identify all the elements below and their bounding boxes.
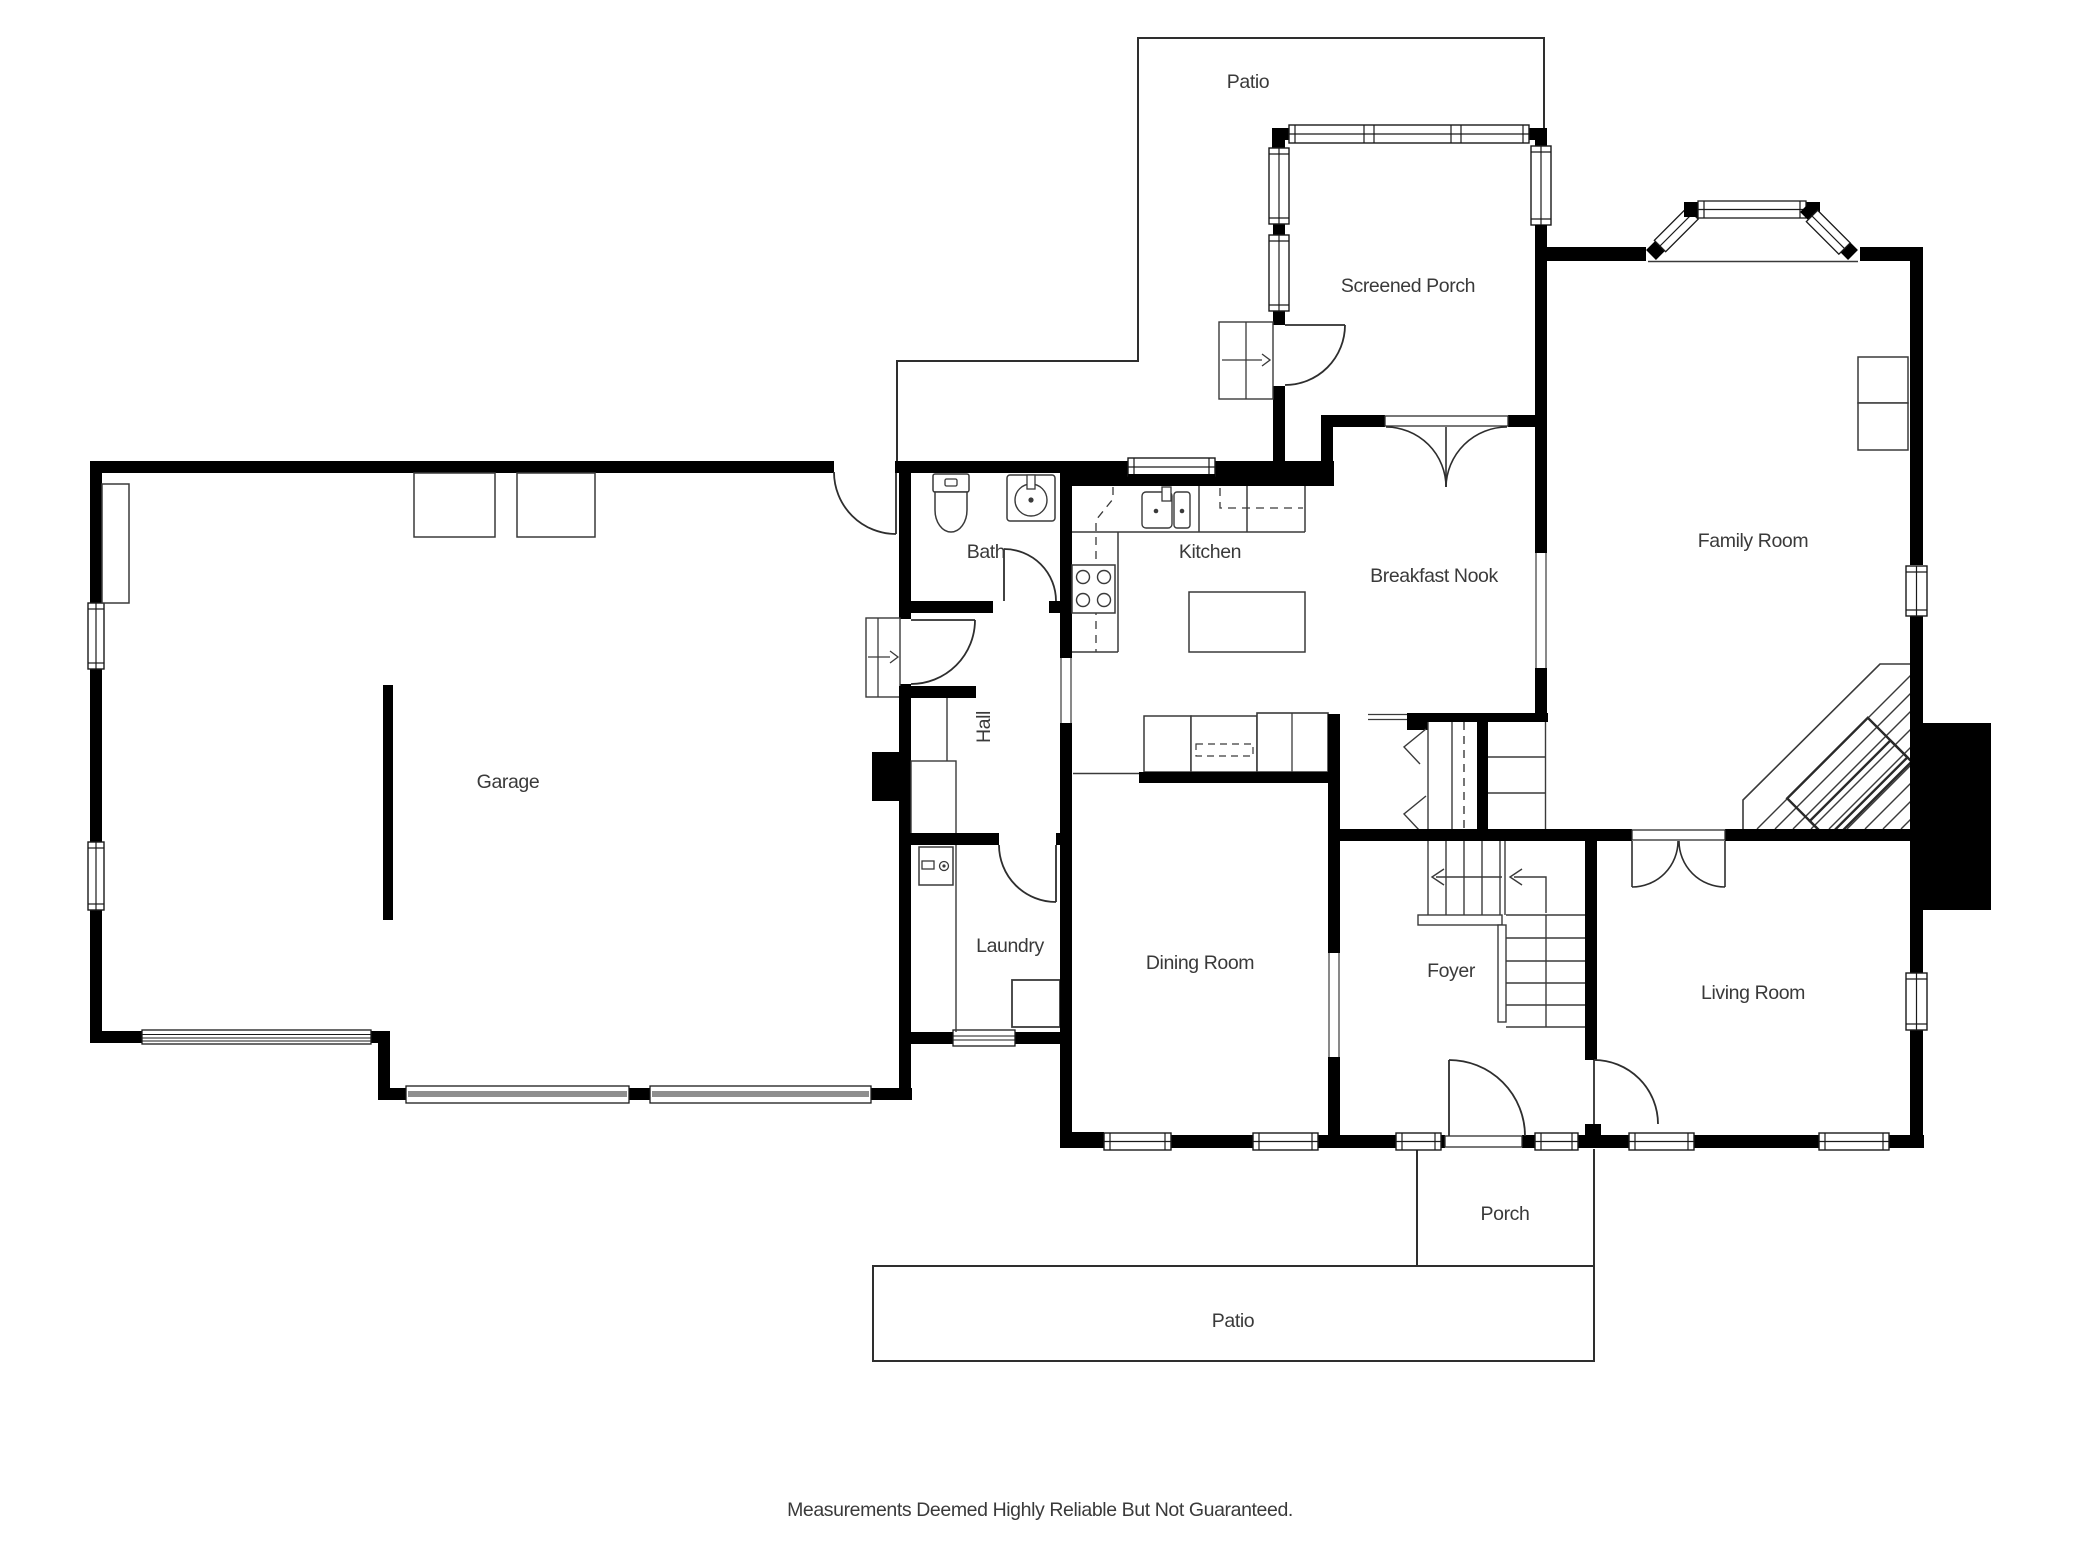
svg-text:Hall: Hall [973, 711, 995, 743]
svg-text:Dining Room: Dining Room [1146, 952, 1254, 974]
svg-text:Laundry: Laundry [976, 935, 1044, 957]
svg-text:Kitchen: Kitchen [1179, 541, 1241, 563]
svg-text:Bath: Bath [967, 541, 1006, 563]
svg-text:Measurements Deemed Highly Rel: Measurements Deemed Highly Reliable But … [787, 1499, 1293, 1521]
svg-text:Porch: Porch [1481, 1203, 1530, 1225]
svg-text:Garage: Garage [477, 771, 540, 793]
svg-text:Patio: Patio [1212, 1310, 1255, 1332]
svg-text:Family Room: Family Room [1698, 530, 1808, 552]
svg-text:Screened Porch: Screened Porch [1341, 275, 1475, 297]
svg-text:Living Room: Living Room [1701, 982, 1805, 1004]
svg-text:Foyer: Foyer [1427, 960, 1476, 982]
svg-text:Patio: Patio [1227, 71, 1270, 93]
svg-text:Breakfast Nook: Breakfast Nook [1370, 565, 1498, 587]
